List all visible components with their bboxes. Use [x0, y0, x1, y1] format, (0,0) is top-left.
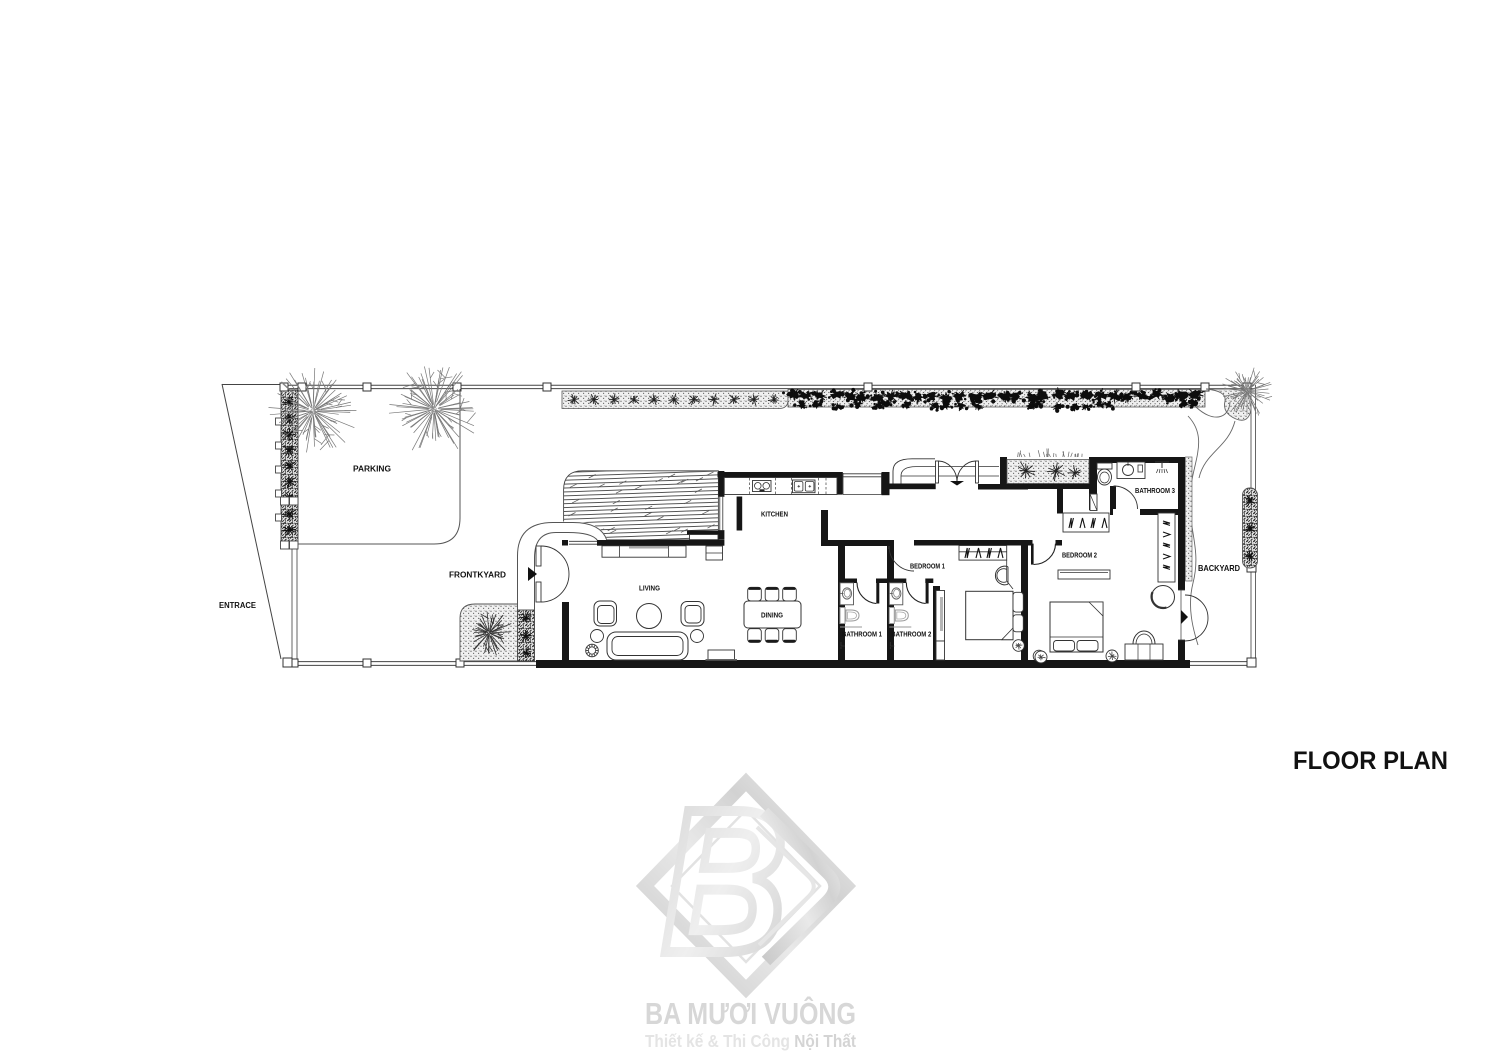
svg-text:BA MƯƠI VUÔNG: BA MƯƠI VUÔNG — [645, 995, 856, 1031]
svg-text:BATHROOM 3: BATHROOM 3 — [1135, 488, 1175, 495]
svg-text:BATHROOM 1: BATHROOM 1 — [842, 632, 882, 639]
svg-text:FLOOR PLAN: FLOOR PLAN — [1293, 747, 1448, 775]
svg-text:LIVING: LIVING — [639, 586, 660, 593]
svg-text:BEDROOM 1: BEDROOM 1 — [910, 564, 945, 571]
svg-text:PARKING: PARKING — [353, 465, 391, 474]
svg-text:Thiết kế & Thi Công Nội Thất: Thiết kế & Thi Công Nội Thất — [645, 1031, 856, 1051]
svg-text:DINING: DINING — [761, 613, 783, 620]
svg-text:FRONTKYARD: FRONTKYARD — [449, 571, 506, 580]
svg-text:ENTRACE: ENTRACE — [219, 601, 257, 610]
svg-text:BEDROOM 2: BEDROOM 2 — [1062, 553, 1097, 560]
svg-text:BATHROOM 2: BATHROOM 2 — [891, 632, 931, 639]
svg-text:BACKYARD: BACKYARD — [1198, 563, 1240, 573]
svg-text:KITCHEN: KITCHEN — [761, 512, 788, 519]
